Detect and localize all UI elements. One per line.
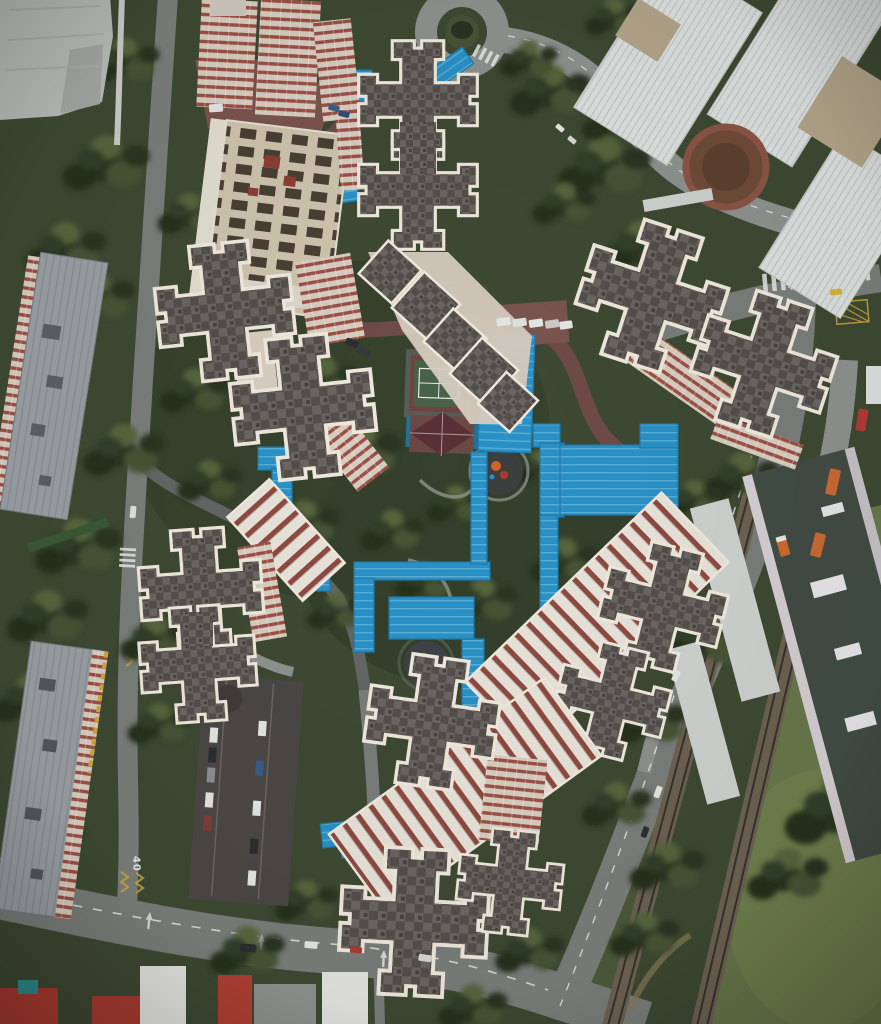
aerial-photo: 40 xyxy=(0,0,881,1024)
vignette xyxy=(0,0,881,1024)
aerial-photo-canvas: 40 xyxy=(0,0,881,1024)
